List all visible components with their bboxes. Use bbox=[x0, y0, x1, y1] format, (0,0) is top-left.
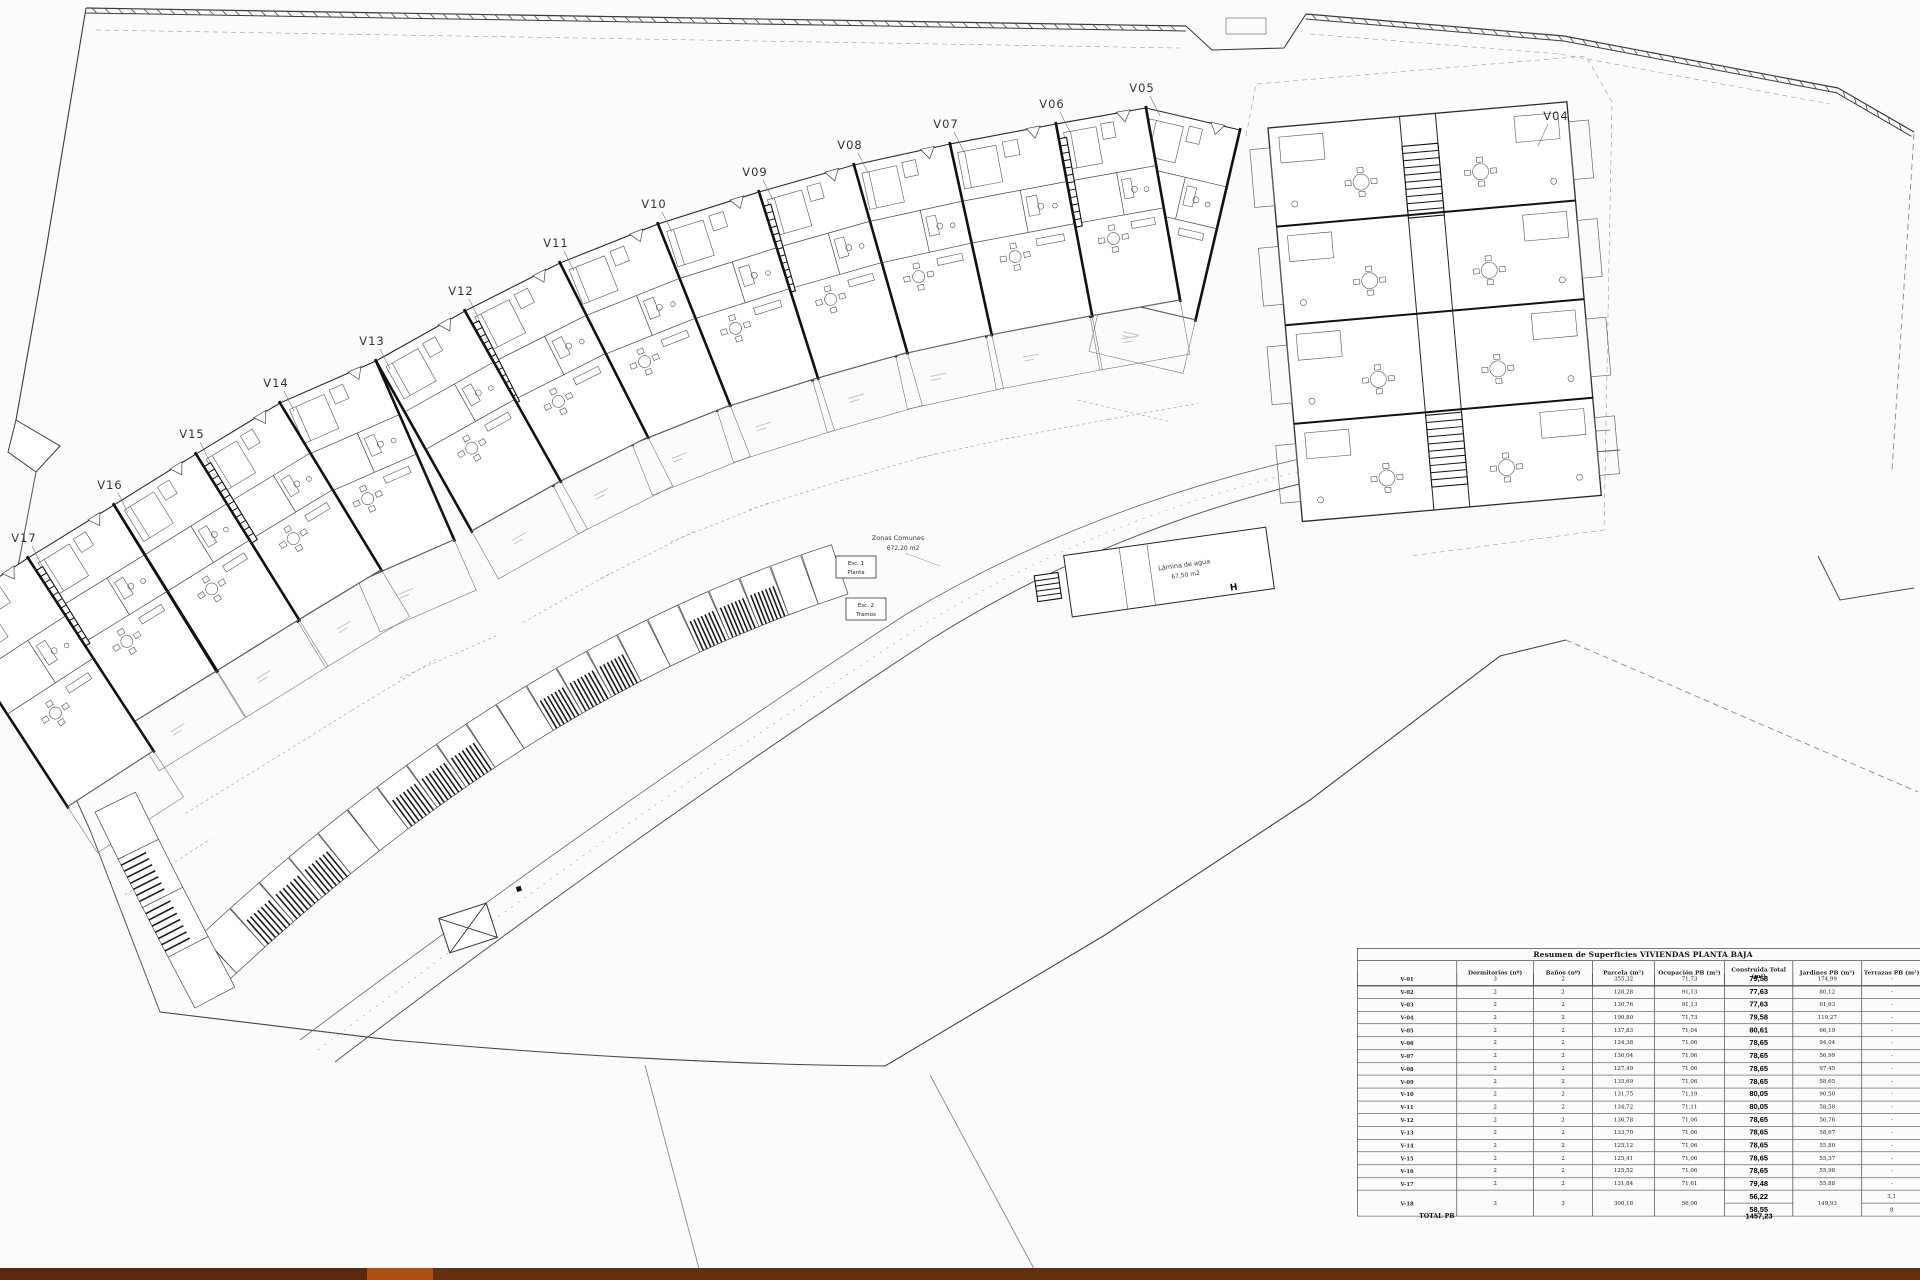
cell-terrazas: - bbox=[1862, 1140, 1920, 1153]
svg-text:Esc. 2: Esc. 2 bbox=[858, 603, 874, 609]
utility-box bbox=[437, 886, 534, 953]
cell-terrazas: - bbox=[1862, 1178, 1920, 1191]
hydrant-label: H bbox=[1229, 583, 1238, 594]
row-label: V-12 bbox=[1357, 1114, 1457, 1127]
cell-banos: 2 bbox=[1534, 1024, 1593, 1037]
cell-parcela: 133,70 bbox=[1593, 1127, 1655, 1140]
cell-terrazas: - bbox=[1862, 1012, 1920, 1025]
cell-parcela: 131,84 bbox=[1593, 1178, 1655, 1191]
cell-jardines: 119,27 bbox=[1793, 1012, 1862, 1025]
cell-terrazas: - bbox=[1862, 1063, 1920, 1076]
cell-ocupacion: 71,19 bbox=[1655, 1088, 1725, 1101]
cell-parcela: 127,49 bbox=[1593, 1063, 1655, 1076]
cell-terrazas: - bbox=[1862, 986, 1920, 999]
cell-jardines: 55,37 bbox=[1793, 1152, 1862, 1165]
row-label: V-16 bbox=[1357, 1165, 1457, 1178]
cell-ocupacion: 71,06 bbox=[1655, 1152, 1725, 1165]
cell-ocupacion: 91,13 bbox=[1655, 986, 1725, 999]
cell-parcela: 134,38 bbox=[1593, 1037, 1655, 1050]
cell-ocupacion: 71,06 bbox=[1655, 1037, 1725, 1050]
row-label: V-01 bbox=[1357, 973, 1457, 986]
cell-dormitorios: 2 bbox=[1457, 1076, 1534, 1089]
cell-dormitorios: 2 bbox=[1457, 1178, 1534, 1191]
villa-label-v06: V06 bbox=[1039, 97, 1065, 111]
cell-dormitorios: 2 bbox=[1457, 1063, 1534, 1076]
cell-terrazas: - bbox=[1862, 1024, 1920, 1037]
cell-banos: 2 bbox=[1534, 999, 1593, 1012]
total-value: 1457,23 bbox=[1725, 1213, 1793, 1221]
villa-label-v05: V05 bbox=[1129, 81, 1155, 95]
cell-dormitorios: 2 bbox=[1457, 986, 1534, 999]
cell-ocupacion: 91,13 bbox=[1655, 999, 1725, 1012]
cell-parcela: 136,04 bbox=[1593, 1050, 1655, 1063]
cell-construida: 78,65 bbox=[1725, 1152, 1793, 1165]
footer-bar-segment bbox=[433, 1268, 1920, 1280]
cell-dormitorios: 2 bbox=[1457, 1088, 1534, 1101]
cell-parcela: 136,78 bbox=[1593, 1114, 1655, 1127]
footer-bar-segment bbox=[367, 1268, 433, 1280]
villa-label-v12: V12 bbox=[448, 284, 474, 298]
cell-terrazas: - bbox=[1862, 1152, 1920, 1165]
cell-terrazas: - bbox=[1862, 973, 1920, 986]
villa-label-v16: V16 bbox=[97, 478, 123, 492]
villa-label-v09: V09 bbox=[742, 165, 768, 179]
cell-ocupacion: 71,04 bbox=[1655, 1024, 1725, 1037]
cell-banos: 2 bbox=[1534, 1178, 1593, 1191]
cell-parcela: 135,69 bbox=[1593, 1076, 1655, 1089]
villa-label-v07: V07 bbox=[933, 117, 959, 131]
table-grid: Dormitorios (nº)Baños (nº)Parcela (m²)Oc… bbox=[1357, 960, 1920, 1203]
stair-label-box: Esc. 2Tramos bbox=[846, 598, 886, 620]
cell-construida: 77,63 bbox=[1725, 999, 1793, 1012]
cell-parcela: 128,28 bbox=[1593, 986, 1655, 999]
cell-construida: 78,65 bbox=[1725, 1063, 1793, 1076]
cell-construida: 77,63 bbox=[1725, 986, 1793, 999]
cell-banos: 2 bbox=[1534, 1127, 1593, 1140]
cell-parcela: 125,41 bbox=[1593, 1152, 1655, 1165]
cell-dormitorios: 3 bbox=[1457, 1191, 1534, 1217]
common-zone-label: Zonas Comunes bbox=[872, 534, 925, 542]
cell-parcela: 125,52 bbox=[1593, 1165, 1655, 1178]
cell-construida: 78,65 bbox=[1725, 1127, 1793, 1140]
cell-dormitorios: 2 bbox=[1457, 1152, 1534, 1165]
cell-parcela: 355,32 bbox=[1593, 973, 1655, 986]
cell-dormitorios: 2 bbox=[1457, 1012, 1534, 1025]
villa-label-v10: V10 bbox=[641, 197, 667, 211]
cell-banos: 2 bbox=[1534, 1050, 1593, 1063]
cell-jardines: 55,88 bbox=[1793, 1178, 1862, 1191]
cell-dormitorios: 2 bbox=[1457, 1127, 1534, 1140]
cell-jardines: 61,63 bbox=[1793, 999, 1862, 1012]
villa-label-v04: V04 bbox=[1543, 109, 1569, 123]
cell-construida: 78,65 bbox=[1725, 1165, 1793, 1178]
cell-construida: 78,65 bbox=[1725, 1114, 1793, 1127]
cell-dormitorios: 2 bbox=[1457, 999, 1534, 1012]
row-label: V-08 bbox=[1357, 1063, 1457, 1076]
cell-construida: 80,05 bbox=[1725, 1101, 1793, 1114]
cell-banos: 2 bbox=[1534, 1012, 1593, 1025]
cell-parcela: 134,72 bbox=[1593, 1101, 1655, 1114]
cell-terrazas: - bbox=[1862, 1076, 1920, 1089]
cell-parcela: 300,18 bbox=[1593, 1191, 1655, 1217]
cell-banos: 2 bbox=[1534, 986, 1593, 999]
row-label: V-09 bbox=[1357, 1076, 1457, 1089]
cell-banos: 2 bbox=[1534, 973, 1593, 986]
cell-banos: 2 bbox=[1534, 1037, 1593, 1050]
cell-terrazas: - bbox=[1862, 1165, 1920, 1178]
cell-dormitorios: 2 bbox=[1457, 1114, 1534, 1127]
row-label: V-03 bbox=[1357, 999, 1457, 1012]
villa-label-v15: V15 bbox=[179, 427, 205, 441]
cell-parcela: 190,80 bbox=[1593, 1012, 1655, 1025]
cell-dormitorios: 2 bbox=[1457, 1165, 1534, 1178]
villa-label-v13: V13 bbox=[359, 334, 385, 348]
stair-label-box: Esc. 1Planta bbox=[836, 556, 876, 578]
cell-jardines: 56,99 bbox=[1793, 1050, 1862, 1063]
cell-dormitorios: 3 bbox=[1457, 973, 1534, 986]
cell-jardines: 174,99 bbox=[1793, 973, 1862, 986]
cell-terrazas: - bbox=[1862, 1127, 1920, 1140]
cell-jardines: 58,65 bbox=[1793, 1076, 1862, 1089]
cell-ocupacion: 71,61 bbox=[1655, 1178, 1725, 1191]
cell-ocupacion: 71,06 bbox=[1655, 1140, 1725, 1153]
cell-construida: 80,61 bbox=[1725, 1024, 1793, 1037]
cell-jardines: 55,98 bbox=[1793, 1165, 1862, 1178]
cell-construida: 79,58 bbox=[1725, 1012, 1793, 1025]
cell-banos: 2 bbox=[1534, 1140, 1593, 1153]
row-label: V-10 bbox=[1357, 1088, 1457, 1101]
surface-summary-table: Resumen de Superficies VIVIENDAS PLANTA … bbox=[1357, 948, 1920, 1220]
cell-jardines: 94,04 bbox=[1793, 1037, 1862, 1050]
row-label: V-17 bbox=[1357, 1178, 1457, 1191]
cell-jardines: 58,58 bbox=[1793, 1101, 1862, 1114]
cell-banos: 2 bbox=[1534, 1088, 1593, 1101]
pool: Lámina de agua67,50 m2H bbox=[1032, 527, 1274, 621]
cell-parcela: 137,83 bbox=[1593, 1024, 1655, 1037]
cell-dormitorios: 2 bbox=[1457, 1037, 1534, 1050]
cell-banos: 2 bbox=[1534, 1076, 1593, 1089]
cell-ocupacion: 71,11 bbox=[1655, 1101, 1725, 1114]
cell-terrazas: - bbox=[1862, 1114, 1920, 1127]
cell-parcela: 125,12 bbox=[1593, 1140, 1655, 1153]
cell-jardines: 149,93 bbox=[1793, 1191, 1862, 1217]
cell-terrazas: - bbox=[1862, 1050, 1920, 1063]
row-label: V-14 bbox=[1357, 1140, 1457, 1153]
villa-label-v14: V14 bbox=[263, 376, 289, 390]
cell-jardines: 90,50 bbox=[1793, 1088, 1862, 1101]
row-label: V-02 bbox=[1357, 986, 1457, 999]
cell-ocupacion: 71,06 bbox=[1655, 1076, 1725, 1089]
total-label: TOTAL PB bbox=[1357, 1213, 1457, 1221]
cell-dormitorios: 2 bbox=[1457, 1024, 1534, 1037]
cell-dormitorios: 2 bbox=[1457, 1101, 1534, 1114]
cell-banos: 2 bbox=[1534, 1165, 1593, 1178]
row-label: V-05 bbox=[1357, 1024, 1457, 1037]
cell-banos: 2 bbox=[1534, 1114, 1593, 1127]
row-label: V-11 bbox=[1357, 1101, 1457, 1114]
cell-construida: 78,65 bbox=[1725, 1076, 1793, 1089]
cell-ocupacion: 71,06 bbox=[1655, 1165, 1725, 1178]
cell-terrazas: - bbox=[1862, 1088, 1920, 1101]
footer-bar-segment bbox=[0, 1268, 367, 1280]
cell-banos: 2 bbox=[1534, 1101, 1593, 1114]
svg-text:Tramos: Tramos bbox=[855, 612, 876, 618]
cell-ocupacion: 71,06 bbox=[1655, 1114, 1725, 1127]
table-title: Resumen de Superficies VIVIENDAS PLANTA … bbox=[1357, 948, 1920, 960]
cell-parcela: 131,75 bbox=[1593, 1088, 1655, 1101]
row-label: V-06 bbox=[1357, 1037, 1457, 1050]
cell-banos: 2 bbox=[1534, 1152, 1593, 1165]
cell-jardines: 58,67 bbox=[1793, 1127, 1862, 1140]
cell-jardines: 66,19 bbox=[1793, 1024, 1862, 1037]
villa-label-v17: V17 bbox=[11, 531, 37, 545]
footer-color-bar bbox=[0, 1268, 1920, 1280]
cell-construida: 79,58 bbox=[1725, 973, 1793, 986]
cell-jardines: 80,12 bbox=[1793, 986, 1862, 999]
cell-ocupacion: 71,73 bbox=[1655, 973, 1725, 986]
cell-parcela: 130,76 bbox=[1593, 999, 1655, 1012]
row-label: V-07 bbox=[1357, 1050, 1457, 1063]
cell-ocupacion: 56,00 bbox=[1655, 1191, 1725, 1217]
cell-construida: 80,05 bbox=[1725, 1088, 1793, 1101]
cell-terrazas: - bbox=[1862, 1037, 1920, 1050]
cell-construida: 78,65 bbox=[1725, 1050, 1793, 1063]
cell-dormitorios: 2 bbox=[1457, 1140, 1534, 1153]
cell-construida: 78,65 bbox=[1725, 1140, 1793, 1153]
cell-ocupacion: 71,06 bbox=[1655, 1063, 1725, 1076]
row-label: V-15 bbox=[1357, 1152, 1457, 1165]
common-zone-area-label: 672,20 m2 bbox=[887, 545, 920, 552]
svg-text:Planta: Planta bbox=[847, 570, 864, 576]
cell-jardines: 56,76 bbox=[1793, 1114, 1862, 1127]
cell-ocupacion: 71,06 bbox=[1655, 1050, 1725, 1063]
villa-label-v08: V08 bbox=[837, 138, 863, 152]
row-label: V-13 bbox=[1357, 1127, 1457, 1140]
cell-dormitorios: 2 bbox=[1457, 1050, 1534, 1063]
cell-banos: 3 bbox=[1534, 1191, 1593, 1217]
cell-jardines: 55,80 bbox=[1793, 1140, 1862, 1153]
villa-label-v11: V11 bbox=[543, 236, 569, 250]
site-plan-canvas: Lámina de agua67,50 m2HZonas Comunes672,… bbox=[0, 0, 1920, 1280]
cell-banos: 2 bbox=[1534, 1063, 1593, 1076]
cell-terrazas: - bbox=[1862, 1101, 1920, 1114]
cell-construida: 78,65 bbox=[1725, 1037, 1793, 1050]
cell-terrazas: - bbox=[1862, 999, 1920, 1012]
cell-ocupacion: 71,73 bbox=[1655, 1012, 1725, 1025]
cell-terrazas: 3,18 bbox=[1862, 1191, 1920, 1217]
cell-ocupacion: 71,06 bbox=[1655, 1127, 1725, 1140]
svg-text:Esc. 1: Esc. 1 bbox=[848, 561, 864, 567]
row-label: V-04 bbox=[1357, 1012, 1457, 1025]
cell-jardines: 97,45 bbox=[1793, 1063, 1862, 1076]
cell-construida: 79,48 bbox=[1725, 1178, 1793, 1191]
apartment-cluster bbox=[1248, 100, 1621, 523]
